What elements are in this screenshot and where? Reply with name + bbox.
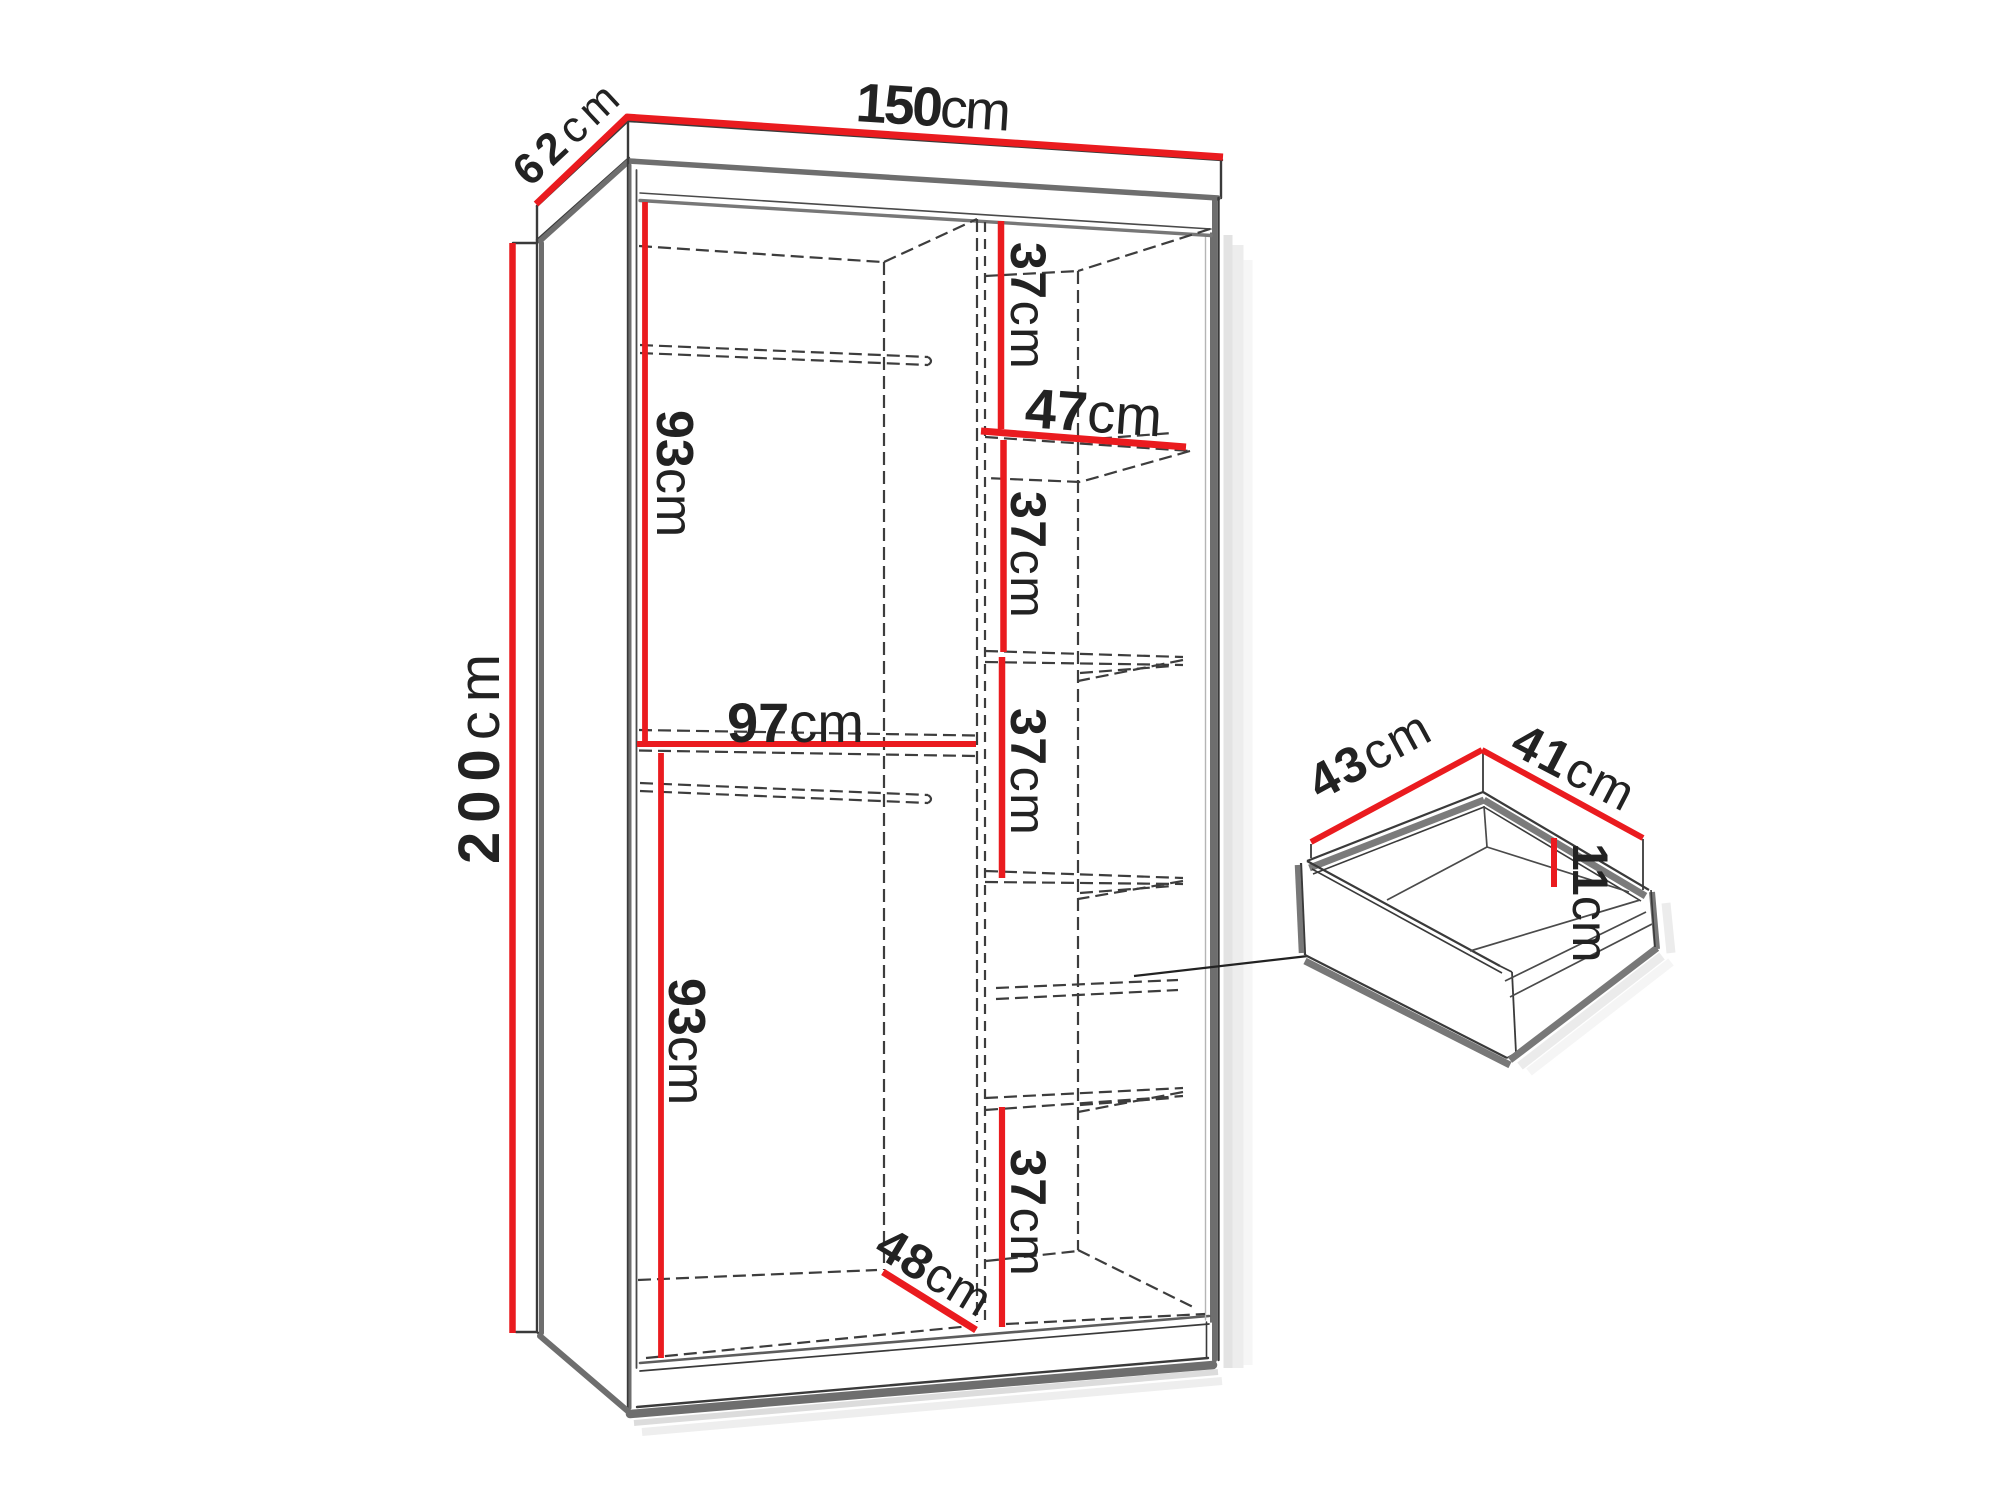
svg-text:47cm: 47cm xyxy=(1023,376,1164,448)
svg-text:150cm: 150cm xyxy=(854,71,1010,142)
svg-text:37cm: 37cm xyxy=(1000,708,1056,836)
svg-text:37cm: 37cm xyxy=(1000,491,1056,619)
svg-text:37cm: 37cm xyxy=(1000,242,1056,370)
svg-text:200cm: 200cm xyxy=(447,645,512,864)
svg-text:37cm: 37cm xyxy=(1000,1149,1056,1277)
svg-text:11cm: 11cm xyxy=(1562,843,1618,963)
svg-text:93cm: 93cm xyxy=(645,410,703,537)
svg-text:93cm: 93cm xyxy=(657,978,715,1105)
svg-text:97cm: 97cm xyxy=(727,691,864,754)
